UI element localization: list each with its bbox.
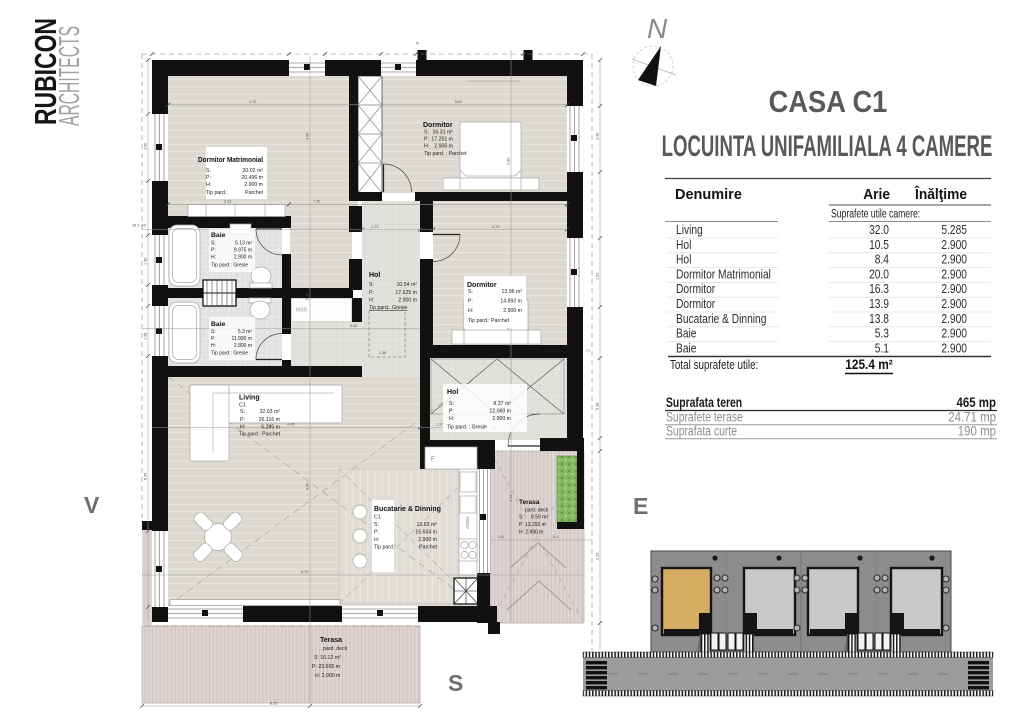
svg-text:8.59 m²: 8.59 m² <box>531 515 548 521</box>
svg-text:15.604 m: 15.604 m <box>415 530 437 536</box>
svg-text:S:: S: <box>206 168 211 174</box>
svg-text:H:: H: <box>449 416 454 422</box>
svg-text:1.98: 1.98 <box>144 258 148 265</box>
svg-text:5.60: 5.60 <box>455 100 462 104</box>
svg-text:2.900 m: 2.900 m <box>492 416 511 422</box>
svg-text:Hol: Hol <box>676 239 691 252</box>
svg-text:Tip pard : Gresie: Tip pard : Gresie <box>211 263 248 269</box>
svg-text:S:: S: <box>211 329 216 335</box>
svg-text:2.900 m: 2.900 m <box>398 298 417 304</box>
svg-text:H: 2.900 m: H: 2.900 m <box>315 673 340 679</box>
svg-text:S:: S: <box>449 401 454 407</box>
svg-text:P:: P: <box>211 336 216 342</box>
svg-text:Înălţime: Înălţime <box>914 185 967 202</box>
svg-text:H:: H: <box>369 298 374 304</box>
svg-text:S:: S: <box>240 409 245 415</box>
svg-text:3.68: 3.68 <box>306 133 310 140</box>
svg-text:2.900 m: 2.900 m <box>434 144 453 150</box>
svg-text:Living: Living <box>676 224 703 237</box>
svg-text:3.12: 3.12 <box>224 200 231 204</box>
svg-text:S: 16.12 m²: S: 16.12 m² <box>314 655 341 661</box>
svg-text:H:: H: <box>211 255 216 261</box>
svg-text:Dormitor: Dormitor <box>423 122 453 129</box>
svg-text:5.45: 5.45 <box>144 473 148 480</box>
svg-text:24.71 mp: 24.71 mp <box>948 410 996 425</box>
svg-text:H:: H: <box>468 308 473 314</box>
svg-text:2.28: 2.28 <box>596 553 600 560</box>
svg-text:.28 2 .45: .28 2 .45 <box>131 224 146 228</box>
svg-text:3.48: 3.48 <box>596 133 600 140</box>
svg-text:465 mp: 465 mp <box>956 395 996 410</box>
svg-text:32.0: 32.0 <box>869 224 889 237</box>
svg-text:8.70: 8.70 <box>301 570 308 574</box>
svg-text:C1: C1 <box>374 515 381 521</box>
svg-text:14.893 m: 14.893 m <box>500 299 522 305</box>
svg-text:2.90: 2.90 <box>507 158 511 165</box>
svg-text:S:: S: <box>519 515 524 521</box>
svg-text:5.92: 5.92 <box>306 293 310 300</box>
svg-text:Denumire: Denumire <box>675 187 742 203</box>
svg-text:Total suprafete utile:: Total suprafete utile: <box>670 359 758 373</box>
svg-text:1.92: 1.92 <box>596 273 600 280</box>
svg-text:Dormitor Matrimonial: Dormitor Matrimonial <box>676 268 771 281</box>
svg-text:13.8: 13.8 <box>869 313 889 326</box>
svg-text:1.38: 1.38 <box>379 351 386 355</box>
svg-text:H:: H: <box>240 425 245 431</box>
svg-text:6.1: 6.1 <box>553 535 558 539</box>
svg-text:Baie: Baie <box>211 232 226 239</box>
svg-text:10.5: 10.5 <box>869 239 889 252</box>
svg-text:20.0: 20.0 <box>869 268 889 281</box>
svg-text:17.251 m: 17.251 m <box>431 137 453 143</box>
svg-text:H: 2.900 m: H: 2.900 m <box>519 530 543 536</box>
svg-text:Terasa: Terasa <box>320 637 342 644</box>
svg-text:8.35: 8.35 <box>270 702 277 706</box>
svg-text:1.73: 1.73 <box>371 225 378 229</box>
svg-text:Baie: Baie <box>676 328 696 341</box>
svg-text:Tip pard.:: Tip pard.: <box>374 545 396 551</box>
svg-text:Living: Living <box>239 395 260 402</box>
svg-text:32.03 m²: 32.03 m² <box>260 409 281 415</box>
svg-text:2.900: 2.900 <box>941 239 967 252</box>
svg-text:C1: C1 <box>239 403 246 409</box>
svg-text:Tip pard.: Gresie: Tip pard.: Gresie <box>369 305 408 311</box>
svg-text:F: F <box>431 457 435 463</box>
svg-text:Tip pard. : Parchet: Tip pard. : Parchet <box>424 151 467 157</box>
svg-text:2.900: 2.900 <box>941 342 967 355</box>
svg-text:2.900: 2.900 <box>941 254 967 267</box>
svg-text:Baie: Baie <box>676 342 696 355</box>
svg-text:H:: H: <box>374 537 379 543</box>
svg-text:8.37 m²: 8.37 m² <box>493 401 511 407</box>
svg-text:17.625 m: 17.625 m <box>395 290 417 296</box>
svg-text:S:: S: <box>211 241 216 247</box>
svg-text:5.13 m²: 5.13 m² <box>235 241 252 247</box>
svg-text:ASDN: ASDN <box>465 516 470 529</box>
svg-text:16.31 m²: 16.31 m² <box>433 130 454 136</box>
svg-text:S:: S: <box>424 130 429 136</box>
svg-text:N: N <box>647 13 668 44</box>
svg-text:P:: P: <box>468 299 473 305</box>
svg-text:ARCHITECTS: ARCHITECTS <box>53 26 85 126</box>
svg-text:Bucatarie & Dinning: Bucatarie & Dinning <box>374 506 441 513</box>
svg-text:5.1: 5.1 <box>875 342 889 355</box>
svg-text:.77: .77 <box>585 349 590 353</box>
svg-text:Baie: Baie <box>211 321 226 328</box>
svg-text:Tip pard.: Parchet: Tip pard.: Parchet <box>468 318 510 324</box>
svg-text:Hol: Hol <box>676 254 691 267</box>
svg-text:Suprafata teren: Suprafata teren <box>666 395 742 411</box>
svg-text:6.95: 6.95 <box>306 483 310 490</box>
svg-text:5.38: 5.38 <box>596 403 600 410</box>
svg-text:Bucatarie & Dinning: Bucatarie & Dinning <box>676 313 766 326</box>
svg-text:Tip pard : Gresie: Tip pard : Gresie <box>211 351 248 357</box>
svg-text:MSR: MSR <box>296 308 308 314</box>
svg-text:7.30: 7.30 <box>313 200 320 204</box>
svg-text:2.900: 2.900 <box>941 313 967 326</box>
svg-text:Suprafete utile camere:: Suprafete utile camere: <box>831 208 920 221</box>
svg-text:H:: H: <box>211 343 216 349</box>
svg-text:Dormitor: Dormitor <box>676 298 715 311</box>
svg-text:P:: P: <box>374 530 379 536</box>
svg-text:2.800 m: 2.800 m <box>234 343 252 349</box>
svg-text:pard. deck: pard. deck <box>525 508 549 514</box>
svg-text:125.4 m²: 125.4 m² <box>845 356 893 372</box>
svg-text:5.285 m: 5.285 m <box>261 425 280 431</box>
svg-text:1.97: 1.97 <box>436 423 443 427</box>
svg-text:5.3: 5.3 <box>875 328 889 341</box>
svg-text:Dormitor: Dormitor <box>676 283 715 296</box>
svg-text:P:: P: <box>424 137 429 143</box>
svg-text:P:: P: <box>240 417 245 423</box>
svg-text:P:: P: <box>449 409 454 415</box>
svg-text:1.61: 1.61 <box>497 535 504 539</box>
svg-text:2.12: 2.12 <box>509 495 513 502</box>
svg-text:4.75: 4.75 <box>249 100 256 104</box>
svg-text:3.60: 3.60 <box>144 143 148 150</box>
svg-text:4.45: 4.45 <box>287 423 294 427</box>
svg-text:Tip pard. : Gresie: Tip pard. : Gresie <box>447 425 487 431</box>
svg-text:LOCUINTA UNIFAMILIALA 4 CAMERE: LOCUINTA UNIFAMILIALA 4 CAMERE <box>662 130 993 164</box>
svg-text:Terasa: Terasa <box>519 499 540 506</box>
svg-text:2.900 m: 2.900 m <box>234 255 252 261</box>
svg-text:S:: S: <box>468 289 473 295</box>
svg-text:S: S <box>448 670 463 696</box>
svg-text:8.4: 8.4 <box>875 254 890 267</box>
svg-text:P:: P: <box>206 175 211 181</box>
svg-text:2.900 m: 2.900 m <box>503 308 522 314</box>
svg-text:3.40: 3.40 <box>350 324 357 328</box>
svg-text:H:: H: <box>206 182 211 188</box>
svg-text:13.9: 13.9 <box>869 298 889 311</box>
svg-text:Dormitor: Dormitor <box>467 282 497 289</box>
svg-text:26.116 m: 26.116 m <box>259 417 280 423</box>
svg-text:S:: S: <box>369 282 374 288</box>
svg-text:13.96 m²: 13.96 m² <box>502 289 523 295</box>
svg-text:13.83 m²: 13.83 m² <box>417 522 438 528</box>
svg-text:20.496 m: 20.496 m <box>241 175 263 181</box>
svg-text:2.900 m: 2.900 m <box>418 537 437 543</box>
svg-text:Arie: Arie <box>863 186 890 202</box>
svg-text:2.900 m: 2.900 m <box>244 182 263 188</box>
svg-text:H:: H: <box>424 144 429 150</box>
svg-text:16.3: 16.3 <box>869 283 889 296</box>
svg-text:11.990 m: 11.990 m <box>232 336 252 342</box>
svg-text:5.3 m²: 5.3 m² <box>238 329 253 335</box>
svg-text:10.54 m²: 10.54 m² <box>397 282 418 288</box>
svg-text:E: E <box>633 493 648 519</box>
svg-text:Suprafata curte: Suprafata curte <box>666 423 737 439</box>
svg-text:Tip pard.:: Tip pard.: <box>206 190 228 196</box>
svg-text:2.900: 2.900 <box>941 328 967 341</box>
svg-text:20.02 m²: 20.02 m² <box>243 168 264 174</box>
svg-text:2.900: 2.900 <box>941 283 967 296</box>
svg-text:P: 23.665 m: P: 23.665 m <box>312 664 340 670</box>
svg-text:P: 13.292 m: P: 13.292 m <box>519 522 546 528</box>
svg-text:P:: P: <box>211 248 216 254</box>
svg-text:1.98: 1.98 <box>144 333 148 340</box>
svg-text:2.900: 2.900 <box>941 298 967 311</box>
svg-text:2.900: 2.900 <box>941 268 967 281</box>
svg-text:9.975 m: 9.975 m <box>234 248 252 254</box>
svg-text:12.060 m: 12.060 m <box>489 409 511 415</box>
svg-text:Dormitor Matrimonial: Dormitor Matrimonial <box>198 157 263 164</box>
svg-text:Parchet: Parchet <box>419 545 437 551</box>
svg-text:S:: S: <box>374 522 379 528</box>
svg-text:V: V <box>84 492 100 518</box>
svg-text:Hol: Hol <box>369 272 380 279</box>
svg-text:pard. deck: pard. deck <box>323 646 348 652</box>
svg-text:190 mp: 190 mp <box>958 424 996 439</box>
svg-text:Parchet: Parchet <box>245 190 263 196</box>
svg-text:CASA C1: CASA C1 <box>769 85 888 119</box>
svg-text:2.73: 2.73 <box>492 225 499 229</box>
svg-text:Hol: Hol <box>447 389 458 396</box>
svg-text:5.285: 5.285 <box>941 224 967 237</box>
svg-text:P:: P: <box>369 290 374 296</box>
svg-text:Tip pard : Parchet: Tip pard : Parchet <box>239 432 281 438</box>
